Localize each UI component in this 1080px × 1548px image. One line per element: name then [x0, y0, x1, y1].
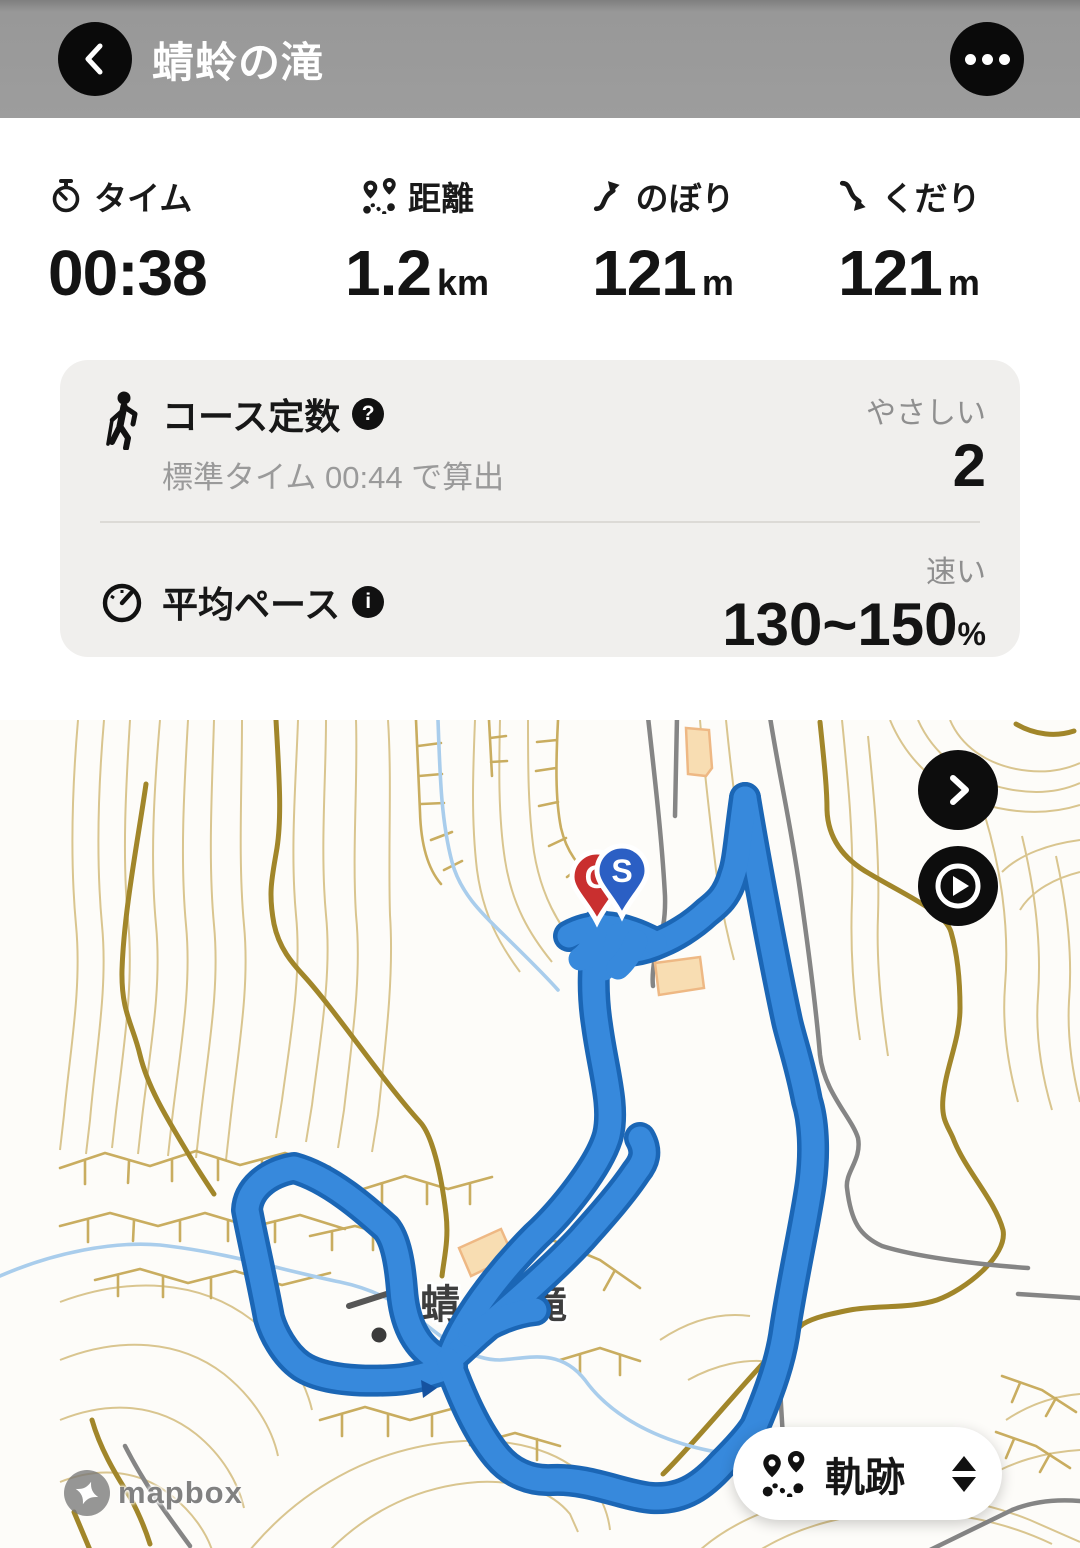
course-constant-row: コース定数 ? 標準タイム 00:44 で算出 やさしい 2 — [94, 388, 986, 497]
stat-distance-unit: km — [437, 262, 489, 304]
route-icon — [360, 178, 398, 214]
track-selector[interactable]: 軌跡 — [733, 1427, 1002, 1520]
cliff-hachures — [60, 720, 1076, 1472]
play-icon — [934, 862, 982, 910]
course-constant-title: コース定数 — [162, 388, 340, 440]
stat-ascent: のぼり 121 m — [540, 172, 786, 360]
average-pace-value: 130~150 — [722, 591, 957, 658]
course-info-card: コース定数 ? 標準タイム 00:44 で算出 やさしい 2 — [60, 360, 1020, 657]
average-pace-rating: 速い — [722, 547, 986, 591]
mapbox-wordmark: mapbox — [118, 1475, 243, 1511]
stat-time-label: タイム — [94, 172, 192, 220]
stat-descent-label: くだり — [882, 172, 981, 220]
course-constant-subtitle: 標準タイム 00:44 で算出 — [162, 452, 504, 497]
chevron-left-icon — [78, 42, 112, 76]
stat-descent-unit: m — [948, 262, 980, 304]
stopwatch-icon — [48, 178, 84, 214]
map-view[interactable]: 蜻蛉 滝 — [0, 720, 1080, 1548]
stat-distance: 距離 1.2 km — [294, 172, 540, 360]
poi-dot — [372, 1328, 387, 1343]
ellipsis-icon — [965, 54, 1010, 65]
index-contour-lines — [74, 720, 1074, 1548]
stat-distance-value: 1.2 — [345, 236, 431, 310]
map-attribution[interactable]: mapbox — [64, 1470, 243, 1516]
back-button[interactable] — [58, 22, 132, 96]
stats-row: タイム 00:38 距離 1.2 — [0, 118, 1080, 360]
descent-icon — [838, 179, 872, 213]
track-selector-label: 軌跡 — [825, 1445, 905, 1503]
more-button[interactable] — [950, 22, 1024, 96]
stat-ascent-unit: m — [702, 262, 734, 304]
stat-distance-label: 距離 — [408, 172, 474, 220]
ascent-icon — [592, 179, 626, 213]
hiker-icon — [99, 390, 145, 450]
average-pace-title: 平均ペース — [162, 576, 340, 628]
chevron-right-icon — [941, 773, 975, 807]
help-icon[interactable]: ? — [352, 398, 384, 430]
card-divider — [100, 521, 980, 523]
expand-panel-button[interactable] — [918, 750, 998, 830]
stat-time-value: 00:38 — [48, 236, 207, 310]
course-constant-value: 2 — [866, 434, 986, 497]
stat-ascent-value: 121 — [592, 236, 696, 310]
track-route-icon — [759, 1451, 807, 1497]
start-marker-letter: S — [611, 853, 632, 889]
map-canvas[interactable]: 蜻蛉 滝 — [0, 720, 1080, 1548]
average-pace-row: 平均ペース i 速い 130~150% — [94, 547, 986, 656]
stat-ascent-label: のぼり — [636, 172, 735, 220]
contour-lines — [60, 720, 1080, 1548]
info-icon[interactable]: i — [352, 586, 384, 618]
stat-descent: くだり 121 m — [786, 172, 1032, 360]
course-constant-rating: やさしい — [866, 388, 986, 432]
header-bar: 蜻蛉の滝 — [0, 0, 1080, 118]
playback-button[interactable] — [918, 846, 998, 926]
speedometer-icon — [99, 580, 145, 626]
page-title: 蜻蛉の滝 — [152, 29, 324, 90]
activity-detail-screen: 蜻蛉の滝 タイム 00:38 — [0, 0, 1080, 1548]
average-pace-unit: % — [958, 616, 986, 652]
stat-time: タイム 00:38 — [48, 172, 294, 360]
stat-descent-value: 121 — [838, 236, 942, 310]
mapbox-logo-icon — [64, 1470, 110, 1516]
sort-arrows-icon — [952, 1456, 976, 1492]
